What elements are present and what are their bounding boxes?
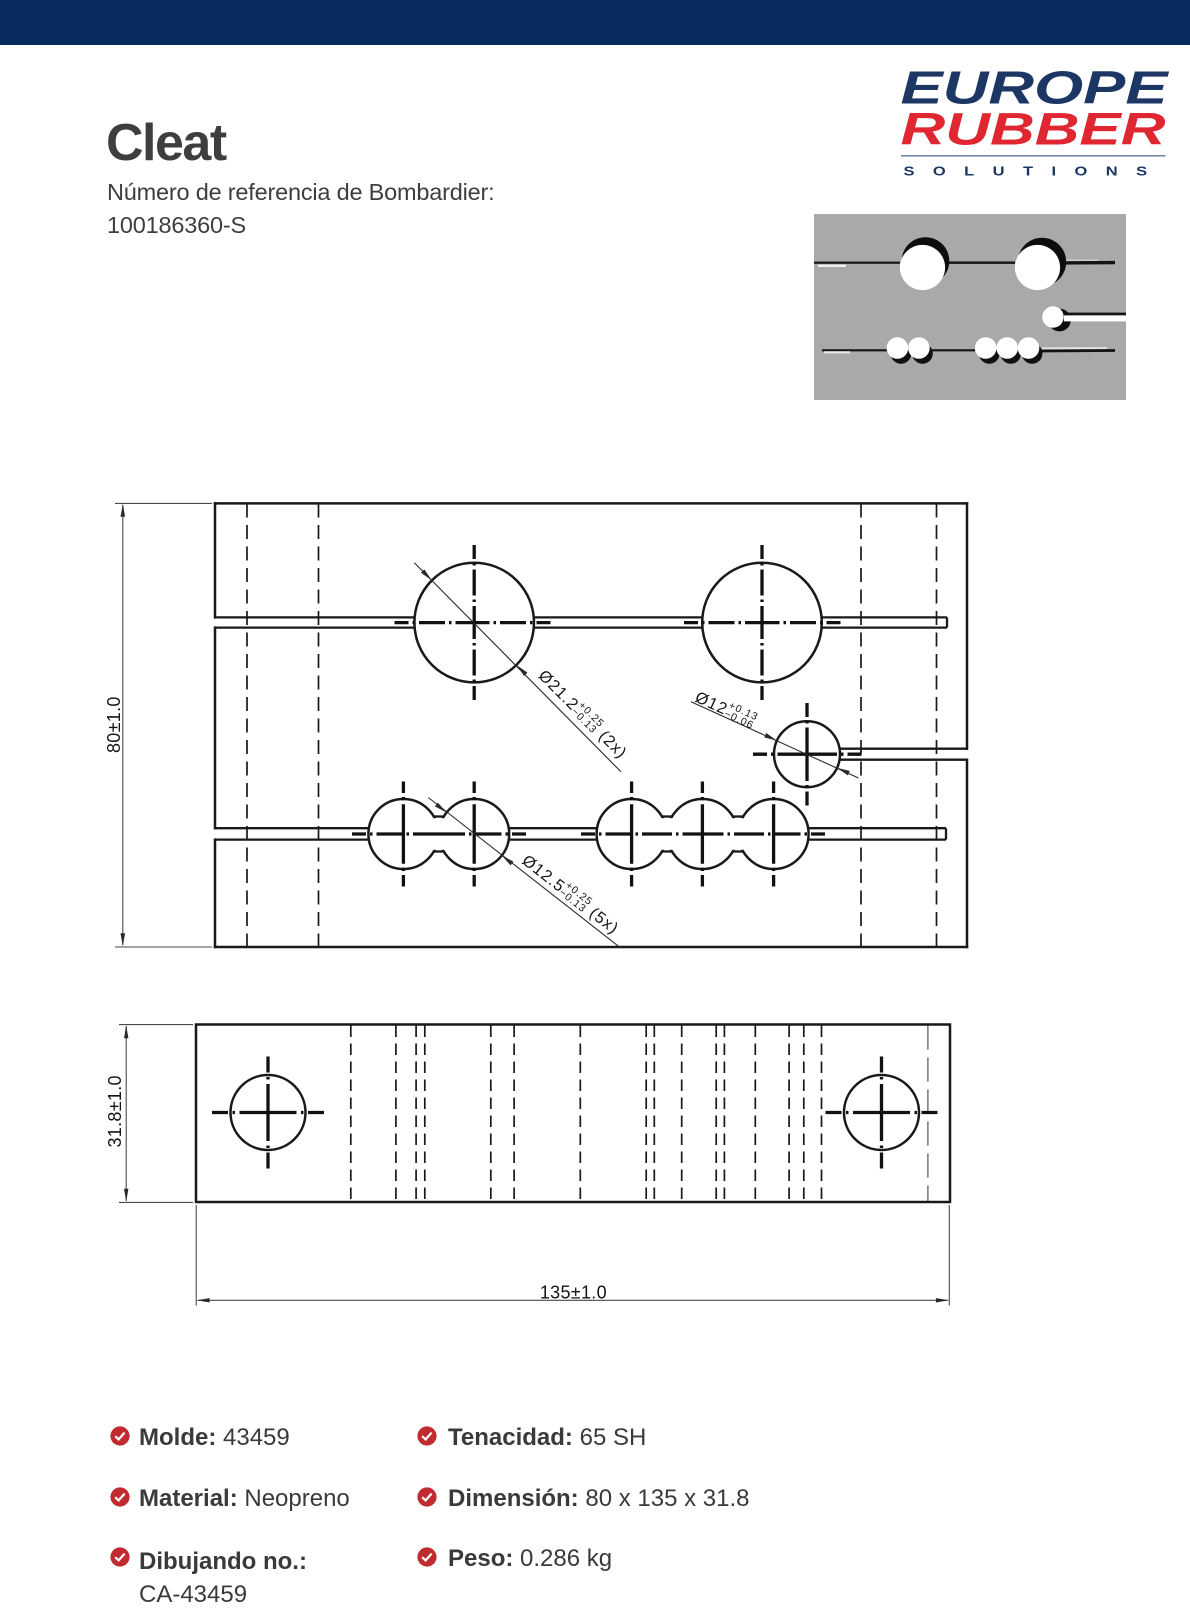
svg-text:135±1.0: 135±1.0 [540, 1283, 607, 1303]
svg-text:Ø12.5+0.25−0.13 (5x): Ø12.5+0.25−0.13 (5x) [518, 850, 623, 939]
svg-text:SOLUTIONS: SOLUTIONS [904, 165, 1166, 179]
svg-text:Ø12+0.13−0.06: Ø12+0.13−0.06 [692, 686, 760, 732]
svg-text:Ø21.2+0.25−0.13 (2x): Ø21.2+0.25−0.13 (2x) [534, 665, 632, 763]
svg-text:31.8±1.0: 31.8±1.0 [105, 1075, 125, 1147]
svg-text:80±1.0: 80±1.0 [104, 696, 124, 753]
svg-text:RUBBER: RUBBER [901, 104, 1167, 155]
